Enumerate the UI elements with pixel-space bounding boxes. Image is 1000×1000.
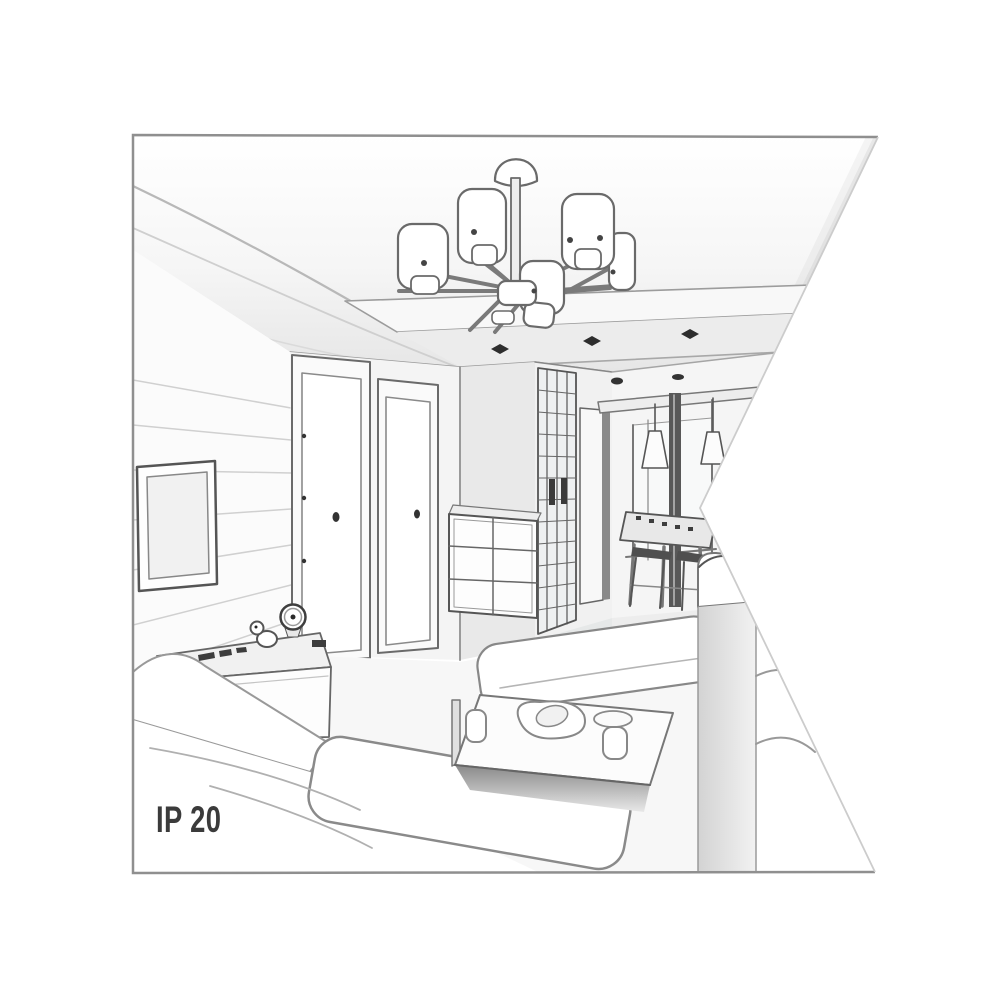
chandelier-stem	[511, 178, 520, 288]
door-handle	[414, 510, 420, 519]
hallway-door	[580, 408, 603, 604]
door-wall	[290, 352, 535, 664]
hallway-wardrobe	[538, 368, 576, 634]
window-mullion	[669, 393, 681, 607]
door-right	[378, 379, 438, 653]
tv-screen	[147, 472, 209, 579]
ip-rating-label: IP 20	[156, 799, 221, 841]
product-illustration: IP 20	[0, 0, 1000, 1000]
drawer-chest	[449, 505, 541, 618]
wardrobe-handle	[549, 479, 555, 505]
chandelier-hub	[498, 281, 536, 305]
room-sketch	[0, 0, 1000, 1000]
door-handle	[333, 512, 340, 522]
wardrobe-handle	[561, 478, 567, 504]
nook-spotlight	[611, 378, 623, 385]
nook-spotlight	[672, 374, 684, 380]
